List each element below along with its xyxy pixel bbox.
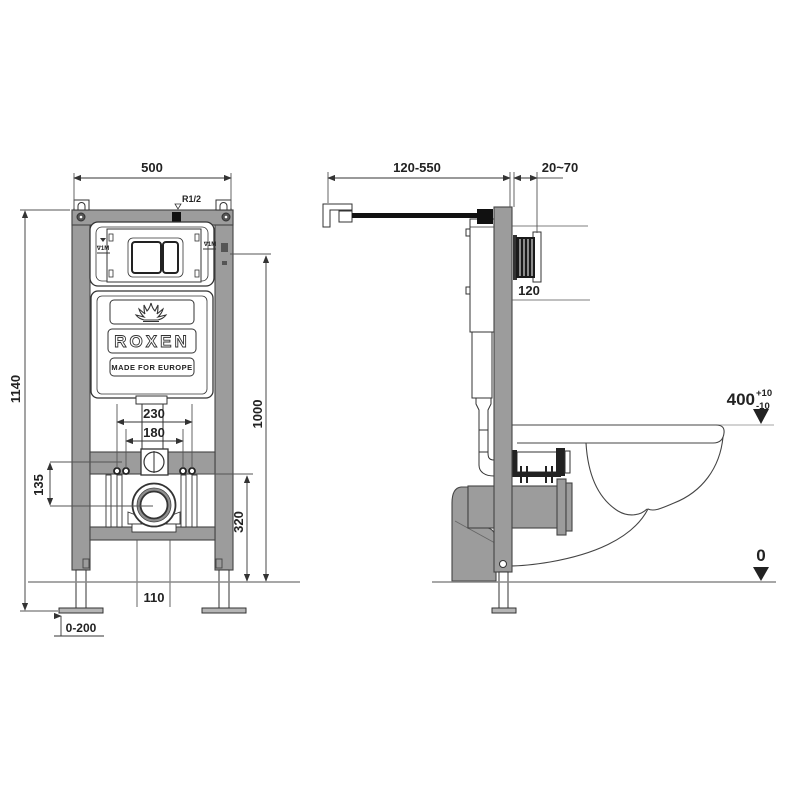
cistern-front: ROXEN MADE FOR EUROPE [91, 291, 213, 398]
foot-plate-side [492, 608, 516, 613]
dim-level-label: 1000 [250, 400, 265, 429]
cistern-side [466, 219, 494, 476]
dim-drain-height-label: 320 [231, 511, 246, 533]
frame-bar-side [492, 207, 516, 613]
dim-outlet-width-label: 110 [144, 590, 165, 605]
bracket-clamp [339, 211, 352, 222]
installation-frame-drawing: 120-550 20~70 120 400 +10 -10 0 [0, 0, 800, 800]
foot-plate-left [59, 608, 103, 613]
flush-plate-front [90, 222, 214, 286]
drain-outlet-pipe [468, 486, 558, 528]
dim-wall-thickness-label: 20~70 [542, 160, 579, 175]
flush-pipe-and-studs [511, 448, 570, 483]
inlet-valve-block [172, 212, 181, 222]
hanger-tab-left [74, 200, 89, 210]
dim-bolts-inner-label: 180 [143, 425, 165, 440]
technical-drawing-page: 120-550 20~70 120 400 +10 -10 0 [0, 0, 800, 800]
drain-flange-outer [557, 479, 566, 535]
foot-plate-right [202, 608, 246, 613]
level-mark-left: ∇1M [97, 245, 110, 252]
floor-zero-marker: 0 [753, 546, 769, 581]
foot-pin-hole [500, 561, 507, 568]
flush-bend-elbow [479, 452, 494, 476]
rim-height-tol-minus: -10 [756, 401, 770, 412]
level-triangle-icon [753, 567, 769, 581]
rail-notch [222, 261, 227, 265]
water-inlet-label: R1/2 [182, 194, 201, 204]
bowl-rim [512, 425, 724, 443]
flush-bend-neck [476, 398, 491, 430]
hanger-tab-right [216, 200, 231, 210]
dim-bolts-outer-label: 230 [143, 406, 165, 421]
side-view: 120-550 20~70 120 400 +10 -10 0 [323, 160, 776, 613]
dim-feet-range-label: 0-200 [66, 621, 97, 635]
dim-plate-opening-label: 120 [518, 283, 540, 298]
flush-pipe-ring [565, 451, 570, 473]
flush-button-small [163, 242, 178, 273]
mounting-stud-rod [511, 472, 561, 477]
inlet-triangle-icon [175, 204, 181, 209]
frame-rail-left [72, 210, 90, 570]
dim-width-label: 500 [141, 160, 163, 175]
cistern-tab-lower [466, 287, 470, 294]
cistern-tab-upper [466, 229, 470, 236]
foot-lock-knob [216, 559, 222, 568]
rail-level-notch [221, 243, 228, 252]
bracket-rod [352, 213, 479, 218]
drain-flange-ring [566, 483, 572, 531]
level-mark-right: ∇1M [204, 241, 217, 248]
foot-tube-right [219, 570, 229, 608]
floor-level-value: 0 [756, 546, 765, 565]
drain-socket [128, 484, 180, 533]
brand-name: ROXEN [114, 332, 189, 351]
wall-bracket-arm [323, 204, 493, 227]
rim-height-tol-plus: +10 [756, 388, 772, 399]
dim-arm-range-label: 120-550 [393, 160, 441, 175]
side-dimensions [328, 172, 563, 233]
rim-height-value: 400 [727, 390, 755, 409]
brand-tagline: MADE FOR EUROPE [111, 363, 192, 372]
flush-pipe-cap-right [556, 448, 565, 476]
dim-height-label: 1140 [8, 375, 23, 403]
bowl-inner-curve [586, 443, 647, 515]
frame-foot-side [499, 572, 508, 608]
rim-height-marker: 400 +10 -10 [727, 388, 773, 424]
flush-button-large [132, 242, 161, 273]
foot-tube-left [76, 570, 86, 608]
dim-inlet-offset-label: 135 [31, 474, 46, 496]
bracket-frame-connector [477, 209, 493, 224]
foot-lock-knob [83, 559, 89, 568]
hanger-tabs [74, 200, 231, 210]
front-view: R1/2 ∇1M ∇1M [8, 160, 300, 636]
flush-pipe-flange [136, 396, 167, 404]
inlet-fitting [141, 449, 168, 475]
